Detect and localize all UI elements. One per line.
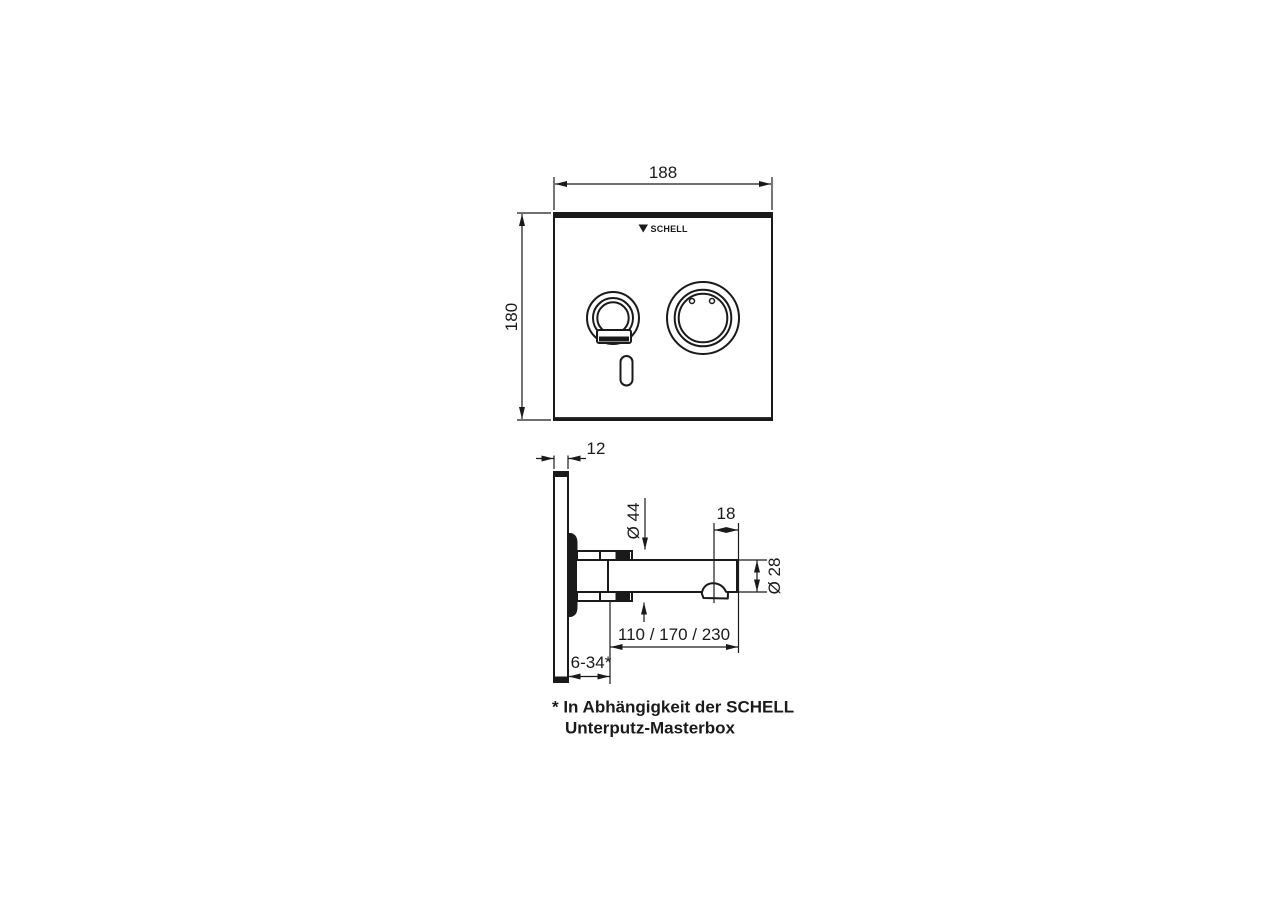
plate-top-cap — [553, 472, 569, 478]
dimension-spout-diameter: Ø 28 — [739, 558, 784, 595]
knob-dot — [710, 299, 715, 304]
front-width-label: 188 — [649, 163, 677, 182]
seal-ring — [616, 592, 631, 601]
footnote-line2: Unterputz-Masterbox — [565, 719, 736, 738]
left-knob-lever — [597, 330, 631, 343]
dimension-front-width: 188 — [555, 163, 771, 184]
footnote: * In Abhängigkeit der SCHELL Unterputz-M… — [552, 698, 794, 738]
dimension-front-height: 180 — [502, 214, 522, 419]
seal-ring — [616, 551, 631, 560]
side-view: 12 Ø 44 18 Ø 28 110 / 170 / 230 — [536, 439, 784, 684]
footnote-line1: * In Abhängigkeit der SCHELL — [552, 698, 794, 717]
rosette-dome — [568, 533, 578, 617]
front-height-label: 180 — [502, 303, 521, 331]
recess-depth-label: 6-34* — [571, 653, 612, 672]
schell-logo-text: SCHELL — [651, 224, 689, 234]
spout-projection-label: 110 / 170 / 230 — [618, 625, 730, 644]
plate-bottom-cap — [553, 677, 569, 683]
knob-dot — [690, 299, 695, 304]
technical-drawing-page: 188 180 SCHELL — [0, 0, 1280, 900]
outlet-offset-label: 18 — [717, 504, 736, 523]
wall-plate — [553, 472, 569, 683]
panel-thickness-label: 12 — [587, 439, 606, 458]
dimension-recess-depth: 6-34* — [569, 653, 612, 677]
dimension-panel-thickness: 12 — [536, 439, 605, 469]
fitting-dimension-drawing: 188 180 SCHELL — [0, 0, 1280, 900]
dimension-spout-projection: 110 / 170 / 230 — [610, 602, 738, 684]
front-view: 188 180 SCHELL — [502, 163, 772, 420]
flange-diameter-label: Ø 44 — [624, 503, 643, 540]
sensor-window — [621, 356, 633, 386]
spout-diameter-label: Ø 28 — [765, 558, 784, 595]
